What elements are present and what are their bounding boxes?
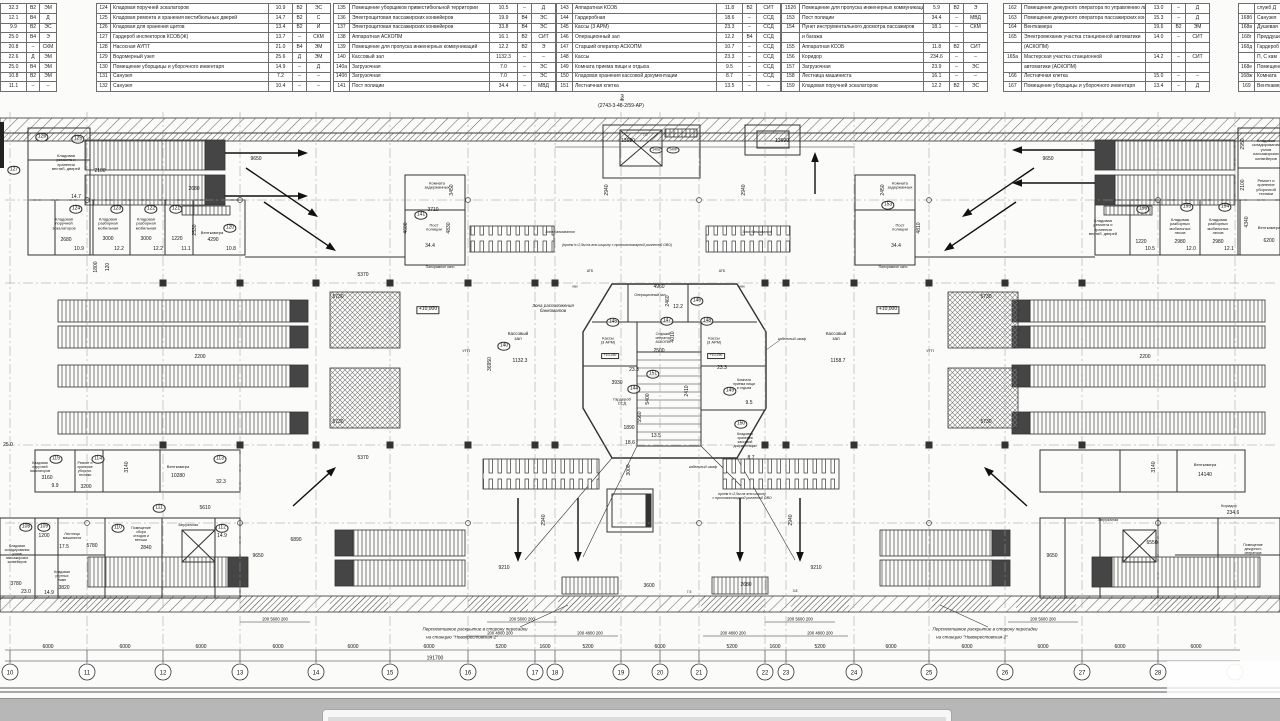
flow-arrow	[264, 202, 330, 247]
table-cell: Д	[1186, 4, 1210, 14]
svg-text:200 4800 200: 200 4800 200	[720, 631, 746, 636]
turnstile-row	[483, 459, 599, 489]
table-cell: СИТ	[1186, 52, 1210, 62]
svg-text:11: 11	[84, 671, 91, 677]
table-cell	[1186, 62, 1210, 72]
table-cell: 165а	[1004, 52, 1022, 62]
table-cell: служб Д	[1255, 4, 1280, 14]
table-cell: 7.0	[490, 62, 518, 72]
table-cell	[1146, 43, 1172, 53]
room-schedule-tables: 32.3В2ЭМ12.1В4Д9.9В2ЭС25.0В4Э20.8–СКМ22.…	[0, 0, 1280, 96]
table-cell: –	[964, 52, 988, 62]
table-cell: 14.9	[269, 62, 293, 72]
table-cell	[1172, 43, 1186, 53]
svg-text:23: 23	[783, 671, 790, 677]
table-cell: –	[743, 62, 757, 72]
table-cell	[1186, 43, 1210, 53]
table-cell: Аппаратная КСОБ	[573, 4, 717, 14]
table-cell: ЭМ	[40, 72, 57, 82]
table-cell: П, С кам	[1255, 52, 1280, 62]
table-cell: –	[293, 72, 307, 82]
table-cell: –	[40, 82, 57, 92]
table-cell: 159	[782, 82, 800, 92]
flow-arrow	[246, 168, 312, 213]
table-cell: 19.6	[1146, 23, 1172, 33]
flow-arrow-head	[944, 242, 954, 251]
table-cell: Насосная АУПТ	[111, 43, 269, 53]
svg-text:6000: 6000	[654, 644, 665, 650]
svg-text:200 5600 200: 200 5600 200	[262, 617, 288, 622]
table-cell: 153	[782, 13, 800, 23]
table-cell: Санузел	[1255, 13, 1280, 23]
table-cell: 8.7	[717, 72, 743, 82]
table-cell: Лестничная клетка	[573, 82, 717, 92]
table-cell: Комната	[1255, 72, 1280, 82]
table-cell: 10.4	[269, 82, 293, 92]
table-cell: 138	[334, 33, 350, 43]
table-cell: –	[518, 82, 532, 92]
table-cell: В4	[743, 33, 757, 43]
table-cell: –	[743, 23, 757, 33]
table-cell: –	[950, 23, 964, 33]
table-cell: Венткамера	[1255, 82, 1280, 92]
table-cell: ССД	[757, 13, 781, 23]
table-cell: Помещение	[1255, 62, 1280, 72]
flow-arrow-head	[298, 149, 308, 157]
flow-arrow-head	[514, 552, 522, 562]
table-cell: 156	[782, 52, 800, 62]
table-cell: В2	[518, 33, 532, 43]
table-cell: 131	[97, 72, 111, 82]
table-cell: 12.1	[1, 13, 27, 23]
table-cell: 141	[334, 82, 350, 92]
table-cell: Преддушевая	[1255, 33, 1280, 43]
table-cell	[1004, 43, 1022, 53]
table-cell: ССД	[757, 62, 781, 72]
room-schedule-table: 152бПомещение для пропуска инженерных ко…	[781, 3, 988, 92]
svg-text:17: 17	[532, 671, 539, 677]
table-cell: 11.1	[1, 82, 27, 92]
table-cell: ЭМ	[40, 4, 57, 14]
table-cell: Э	[532, 43, 556, 53]
table-cell: В2	[27, 4, 40, 14]
table-cell: Гардероб	[1255, 43, 1280, 53]
table-cell: 23.3	[717, 52, 743, 62]
table-cell: В4	[27, 62, 40, 72]
table-cell: 157	[782, 62, 800, 72]
table-cell: ЭС	[964, 62, 988, 72]
table-cell: –	[518, 52, 532, 62]
svg-text:6000: 6000	[1114, 644, 1125, 650]
table-cell: В2	[950, 82, 964, 92]
table-cell: 7.0	[490, 72, 518, 82]
flow-arrow-head	[326, 242, 336, 251]
axis-bubbles: 10111213141516171819202122232425262728	[2, 650, 1243, 680]
table-cell: МВД	[532, 82, 556, 92]
table-cell: В4	[27, 13, 40, 23]
table-cell: 124	[97, 4, 111, 14]
table-cell: 13.7	[269, 33, 293, 43]
table-cell: МВД	[964, 13, 988, 23]
table-cell: В2	[950, 4, 964, 14]
table-cell: Операционный зал	[573, 33, 717, 43]
table-cell: 5.9	[924, 4, 950, 14]
table-cell: Аппаратная КСОБ	[800, 43, 924, 53]
table-cell: 15.3	[1146, 13, 1172, 23]
table-cell: и багажа	[800, 33, 924, 43]
svg-text:25: 25	[926, 671, 933, 677]
table-cell: ЭС	[40, 23, 57, 33]
table-cell: –	[518, 62, 532, 72]
svg-text:28: 28	[1155, 671, 1162, 677]
table-cell	[1004, 62, 1022, 72]
table-cell: ЭС	[532, 62, 556, 72]
table-cell: –	[293, 33, 307, 43]
table-cell: –	[532, 52, 556, 62]
table-cell: СИТ	[1186, 33, 1210, 43]
svg-text:200 4800 200: 200 4800 200	[807, 631, 833, 636]
table-cell: 137	[334, 23, 350, 33]
table-cell: 25.0	[1, 33, 27, 43]
table-cell	[782, 33, 800, 43]
table-cell: 154	[782, 23, 800, 33]
table-cell: 23.9	[924, 62, 950, 72]
table-cell: Комната приема пищи и отдыха	[573, 62, 717, 72]
table-cell: 146	[557, 33, 573, 43]
svg-text:20: 20	[657, 671, 664, 677]
table-cell: ЭМ	[307, 43, 331, 53]
table-cell: 20.8	[1, 43, 27, 53]
table-cell: 126	[97, 23, 111, 33]
table-cell: 14.2	[1146, 52, 1172, 62]
room-schedule-table: 143Аппаратная КСОБ11.8В2СИТ144Гардеробна…	[556, 3, 781, 92]
table-cell: 19.9	[490, 13, 518, 23]
table-cell: Гардероб инспекторов КСОБ(Ж)	[111, 33, 269, 43]
flow-arrow	[950, 202, 1016, 247]
svg-text:6000: 6000	[1037, 644, 1048, 650]
table-cell: –	[757, 82, 781, 92]
table-cell: Помещение для пропуска инженерных коммун…	[800, 4, 924, 14]
table-cell	[1239, 52, 1255, 62]
table-cell: Помещение уборщиков привестибюльной терр…	[350, 4, 490, 14]
table-cell: Пост полиции	[350, 82, 490, 92]
highlight-overlay	[1167, 661, 1280, 699]
table-cell	[924, 33, 950, 43]
table-cell: 12.2	[717, 33, 743, 43]
table-cell: Электрощитовая пассажирских конвейеров	[350, 23, 490, 33]
flow-arrow-head	[574, 552, 582, 562]
table-cell: ЭС	[532, 13, 556, 23]
table-cell: –	[1172, 33, 1186, 43]
table-cell	[1172, 62, 1186, 72]
table-cell: 168ж	[1239, 72, 1255, 82]
table-cell: 168е	[1239, 62, 1255, 72]
table-cell: 13.5	[717, 82, 743, 92]
table-cell: 23.3	[717, 23, 743, 33]
table-cell: –	[950, 62, 964, 72]
table-cell: 145	[557, 23, 573, 33]
floating-toolbar[interactable]	[322, 709, 952, 721]
table-cell: 34.4	[924, 13, 950, 23]
svg-text:200 5600 200: 200 5600 200	[509, 617, 535, 622]
table-cell: В4	[518, 13, 532, 23]
table-cell: Душевая	[1255, 23, 1280, 33]
table-cell: 16.1	[490, 33, 518, 43]
table-cell: Загрузочная	[350, 72, 490, 82]
table-cell: В2	[293, 23, 307, 33]
table-cell	[964, 33, 988, 43]
svg-text:27: 27	[1079, 671, 1086, 677]
table-cell: Кассовый зал	[350, 52, 490, 62]
table-cell: Помещение дежурного оператора по управле…	[1022, 4, 1146, 14]
table-cell: В4	[27, 33, 40, 43]
table-cell: 25.0	[1, 62, 27, 72]
svg-text:12: 12	[160, 671, 167, 677]
svg-text:200 5600 200: 200 5600 200	[1030, 617, 1056, 622]
table-cell: Электрощитовая пассажирских конвейеров	[350, 13, 490, 23]
table-cell: ССД	[757, 33, 781, 43]
table-cell: В2	[27, 23, 40, 33]
svg-text:1600: 1600	[769, 644, 780, 650]
table-cell: ЭС	[964, 82, 988, 92]
table-cell: В2	[293, 4, 307, 14]
table-cell: ЭМ	[307, 52, 331, 62]
table-cell: Гардеробная	[573, 13, 717, 23]
table-cell: Кладовая поручней эскалаторов	[800, 82, 924, 92]
flow-arrow-head	[736, 552, 744, 562]
table-cell: –	[743, 72, 757, 82]
table-cell: Кассы	[573, 52, 717, 62]
table-cell: –	[743, 82, 757, 92]
table-cell: –	[743, 52, 757, 62]
table-cell: 135	[334, 4, 350, 14]
table-cell: СКМ	[964, 23, 988, 33]
table-cell: 13.4	[269, 23, 293, 33]
table-cell: Аппаратная АСКОПМ	[350, 33, 490, 43]
table-cell	[950, 33, 964, 43]
table-cell: ЭС	[307, 4, 331, 14]
table-cell: 140а	[334, 62, 350, 72]
svg-text:200 5600 200: 200 5600 200	[787, 617, 813, 622]
table-cell: В2	[293, 13, 307, 23]
table-cell: 163	[1004, 13, 1022, 23]
table-cell: 33.8	[490, 23, 518, 33]
table-cell: 18.1	[924, 23, 950, 33]
table-cell: 25.6	[269, 52, 293, 62]
table-cell: Мастерская участка станционной	[1022, 52, 1146, 62]
svg-text:6000: 6000	[961, 644, 972, 650]
table-cell: 140б	[334, 72, 350, 82]
table-cell: 16.1	[924, 72, 950, 82]
table-cell: В4	[518, 23, 532, 33]
svg-text:24: 24	[851, 671, 858, 677]
svg-text:6000: 6000	[42, 644, 53, 650]
table-cell: Загрузочная	[350, 62, 490, 72]
table-cell: 9.5	[717, 62, 743, 72]
flow-arrow-head	[962, 208, 972, 217]
table-cell: СКМ	[40, 43, 57, 53]
table-cell: Кассы (3 АРМ)	[573, 23, 717, 33]
turnstile-row	[470, 226, 554, 252]
table-cell: Кладовая ремонта и хранения вестибюльных…	[111, 13, 269, 23]
table-cell: –	[743, 13, 757, 23]
table-cell: 147	[557, 43, 573, 53]
table-cell: В2	[518, 43, 532, 53]
flow-arrow-head	[298, 192, 308, 200]
table-cell: 167	[1004, 82, 1022, 92]
table-cell: 136	[334, 13, 350, 23]
table-cell: 1132.3	[490, 52, 518, 62]
table-cell: –	[1186, 72, 1210, 82]
table-cell: –	[950, 72, 964, 82]
table-cell: 162	[1004, 4, 1022, 14]
table-cell: 139	[334, 43, 350, 53]
room-schedule-table: служб Д168бСанузел168вДушевая168гПреддуш…	[1238, 3, 1280, 92]
table-cell: –	[307, 72, 331, 82]
table-cell: 125	[97, 13, 111, 23]
table-cell: –	[950, 13, 964, 23]
table-cell: ССД	[757, 52, 781, 62]
table-cell: СИТ	[532, 33, 556, 43]
table-cell: –	[27, 82, 40, 92]
svg-text:16: 16	[465, 671, 472, 677]
table-cell: 234.6	[924, 52, 950, 62]
room-schedule-table: 135Помещение уборщиков привестибюльной т…	[333, 3, 556, 92]
table-cell: Санузел	[111, 82, 269, 92]
flow-arrow-head	[811, 152, 819, 162]
table-cell: Д	[293, 52, 307, 62]
flow-arrow	[989, 472, 1027, 506]
table-cell: 13.4	[1146, 82, 1172, 92]
table-cell: 168в	[1239, 23, 1255, 33]
room-schedule-table: 162Помещение дежурного оператора по упра…	[1003, 3, 1210, 92]
table-cell: 166	[1004, 72, 1022, 82]
table-cell: 10.7	[717, 43, 743, 53]
table-cell: С	[307, 13, 331, 23]
table-cell: В2	[27, 72, 40, 82]
table-cell: 9.9	[1, 23, 27, 33]
svg-text:19: 19	[618, 671, 625, 677]
table-cell: Лестница машиниста	[800, 72, 924, 82]
turnstile-row	[706, 226, 790, 252]
table-cell: 18.6	[717, 13, 743, 23]
table-cell: 132	[97, 82, 111, 92]
table-cell: –	[743, 43, 757, 53]
table-cell: 148	[557, 52, 573, 62]
table-cell: Электромеханик участка станционной автом…	[1022, 33, 1146, 43]
table-cell: Пост полиции	[800, 13, 924, 23]
svg-text:5200: 5200	[495, 644, 506, 650]
table-cell: Загрузочная	[800, 62, 924, 72]
table-cell: 158	[782, 72, 800, 82]
table-cell: –	[1172, 82, 1186, 92]
flow-arrow	[293, 472, 331, 506]
table-cell: ЭМ	[1186, 23, 1210, 33]
svg-text:26: 26	[1002, 671, 1009, 677]
table-cell: Венткамера	[1022, 23, 1146, 33]
table-cell: Помещение для пропуска инженерных коммун…	[350, 43, 490, 53]
table-cell: –	[518, 4, 532, 14]
table-cell: 34.4	[490, 82, 518, 92]
table-cell: –	[1172, 4, 1186, 14]
table-cell	[1146, 62, 1172, 72]
table-cell: –	[964, 72, 988, 82]
svg-text:5200: 5200	[814, 644, 825, 650]
table-cell: СКМ	[307, 33, 331, 43]
table-cell: В4	[293, 43, 307, 53]
svg-text:14: 14	[313, 671, 320, 677]
table-cell: 22.6	[1, 52, 27, 62]
table-cell: Помещение дежурного оператора пассажирск…	[1022, 13, 1146, 23]
table-cell: Кладовая поручней эскалаторов	[111, 4, 269, 14]
table-cell: 12.2	[924, 82, 950, 92]
table-cell: 144	[557, 13, 573, 23]
table-cell: СИТ	[964, 43, 988, 53]
table-cell: В2	[1172, 23, 1186, 33]
table-cell: 168б	[1239, 13, 1255, 23]
svg-text:6000: 6000	[423, 644, 434, 650]
svg-text:6000: 6000	[1190, 644, 1201, 650]
table-cell: 10.5	[490, 4, 518, 14]
room-schedule-table: 32.3В2ЭМ12.1В4Д9.9В2ЭС25.0В4Э20.8–СКМ22.…	[0, 3, 57, 92]
table-cell: Д	[27, 52, 40, 62]
svg-text:10: 10	[7, 671, 14, 677]
table-cell: 169	[1239, 82, 1255, 92]
table-cell: 140	[334, 52, 350, 62]
table-cell: 150	[557, 72, 573, 82]
svg-text:200 4800 200: 200 4800 200	[487, 631, 513, 636]
table-cell: Старший оператор АСКОПМ	[573, 43, 717, 53]
table-cell: Д	[1186, 82, 1210, 92]
table-cell: СИТ	[757, 4, 781, 14]
svg-text:6000: 6000	[885, 644, 896, 650]
svg-text:6000: 6000	[119, 644, 130, 650]
table-cell: 164	[1004, 23, 1022, 33]
table-cell: Помещение уборщицы и уборочного инвентар…	[1022, 82, 1146, 92]
table-cell: ЭМ	[40, 52, 57, 62]
table-cell: 151	[557, 82, 573, 92]
svg-text:15: 15	[387, 671, 394, 677]
table-cell: Э	[40, 33, 57, 43]
toolbar-handle[interactable]	[328, 717, 946, 721]
table-cell: ЭС	[532, 72, 556, 82]
table-cell: 11.8	[717, 4, 743, 14]
floor-plan-drawing: 1011121314151617181920212223242526272820…	[0, 0, 1280, 720]
table-cell: ССД	[757, 43, 781, 53]
table-cell: –	[293, 62, 307, 72]
svg-text:18: 18	[552, 671, 559, 677]
table-cell: –	[950, 52, 964, 62]
svg-text:21: 21	[696, 671, 703, 677]
table-cell: 13.0	[1146, 4, 1172, 14]
room-schedule-table: 124Кладовая поручней эскалаторов10.9В2ЭС…	[96, 3, 331, 92]
table-cell: Д	[532, 4, 556, 14]
table-cell: Санузел	[111, 72, 269, 82]
table-cell: 128	[97, 43, 111, 53]
table-cell: Водомерный узел	[111, 52, 269, 62]
table-cell: 15.0	[1146, 72, 1172, 82]
table-cell: В2	[950, 43, 964, 53]
table-cell: 130	[97, 62, 111, 72]
svg-text:6000: 6000	[347, 644, 358, 650]
table-cell: 10.9	[269, 4, 293, 14]
table-cell: 11.8	[924, 43, 950, 53]
svg-text:5200: 5200	[582, 644, 593, 650]
table-cell: В2	[743, 4, 757, 14]
table-cell: ССД	[757, 72, 781, 82]
table-cell: Коридор	[800, 52, 924, 62]
table-cell	[1239, 4, 1255, 14]
